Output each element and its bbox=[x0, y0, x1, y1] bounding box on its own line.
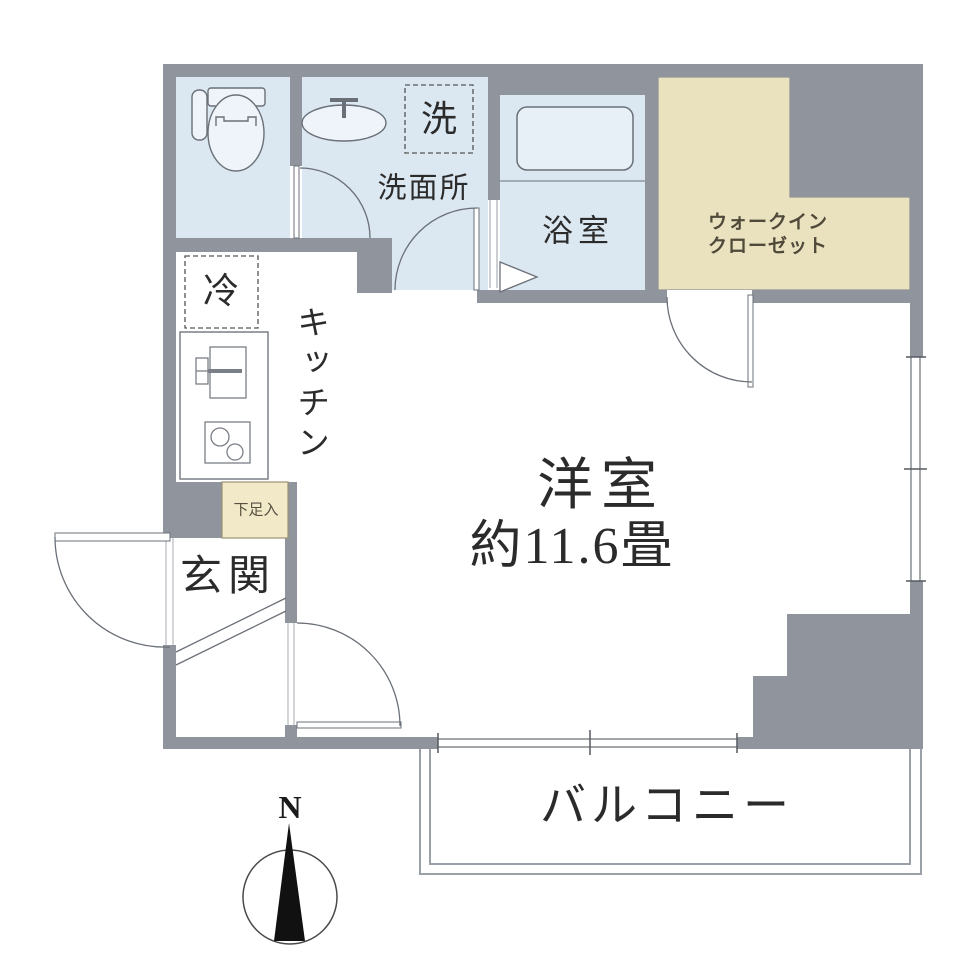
refrigerator-label: 冷 bbox=[203, 273, 239, 309]
main-room-label: 洋室 bbox=[537, 458, 665, 514]
compass-north-label: N bbox=[278, 791, 301, 823]
floor-plan-drawing bbox=[0, 0, 960, 969]
kitchen-label: キッチン bbox=[293, 305, 326, 465]
entrance-label: 玄関 bbox=[180, 556, 276, 598]
laundry-label: 洗 bbox=[421, 101, 457, 137]
compass-needle bbox=[274, 823, 305, 941]
window-balcony-sliding bbox=[438, 730, 737, 755]
washroom-label: 洗面所 bbox=[377, 175, 470, 204]
compass-icon bbox=[243, 823, 337, 944]
floor-plan: 洗 洗面所 浴室 ウォークイン クローゼット 冷 キッチン 洋室 約11.6畳 … bbox=[0, 0, 960, 969]
shoe-cabinet-label: 下足入 bbox=[233, 504, 278, 519]
entrance-step-lines bbox=[176, 598, 286, 665]
window-right bbox=[904, 357, 927, 581]
main-room-size-label: 約11.6畳 bbox=[469, 521, 674, 573]
balcony-label: バルコニー bbox=[540, 783, 794, 829]
walk-in-closet-label-line2: クローゼット bbox=[708, 237, 828, 256]
bathroom-label: 浴室 bbox=[542, 216, 614, 247]
front-door-arc bbox=[55, 537, 170, 647]
entrance-inner-door-arc bbox=[297, 623, 400, 726]
walk-in-closet-label-line1: ウォークイン bbox=[708, 213, 828, 232]
closet-door-arc bbox=[667, 297, 752, 382]
kitchen-counter-icon bbox=[180, 332, 268, 479]
